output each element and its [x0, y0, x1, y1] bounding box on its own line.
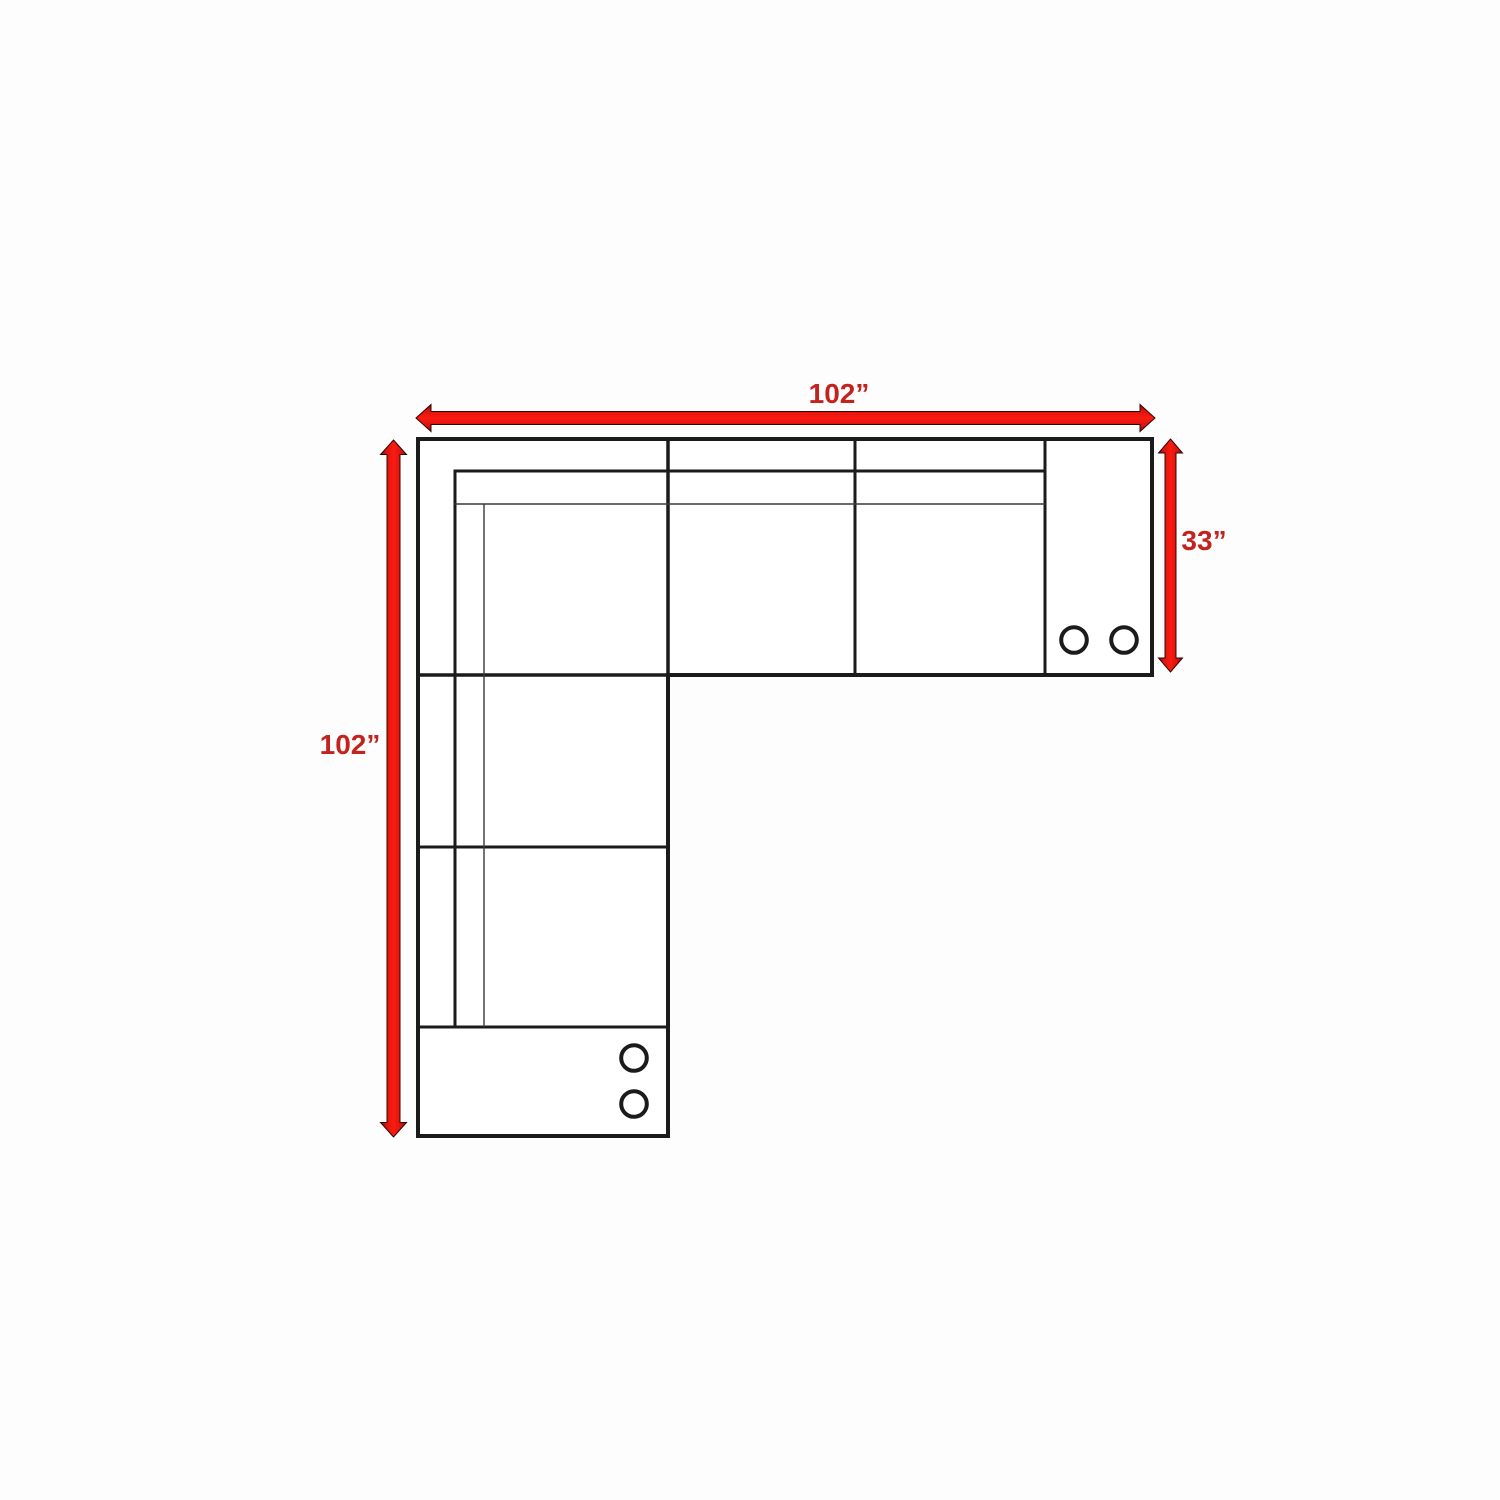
svg-text:102”: 102” — [320, 729, 381, 760]
svg-text:33”: 33” — [1181, 525, 1226, 556]
svg-text:102”: 102” — [809, 378, 870, 409]
